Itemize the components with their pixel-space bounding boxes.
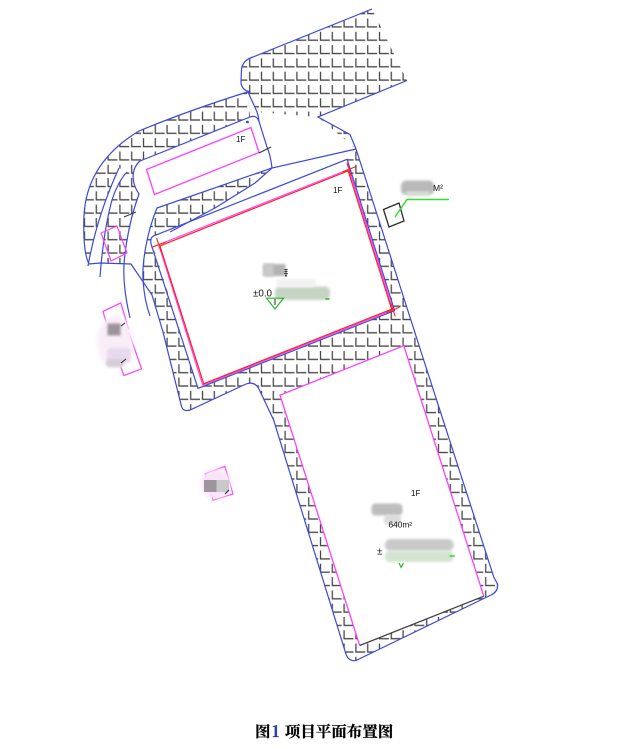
svg-text:±: ±: [377, 547, 383, 558]
svg-text:1F: 1F: [236, 135, 245, 144]
svg-text:640m²: 640m²: [389, 520, 413, 530]
svg-text:1F: 1F: [333, 186, 342, 195]
svg-text:M²: M²: [433, 183, 443, 193]
svg-text:1F: 1F: [411, 489, 420, 498]
